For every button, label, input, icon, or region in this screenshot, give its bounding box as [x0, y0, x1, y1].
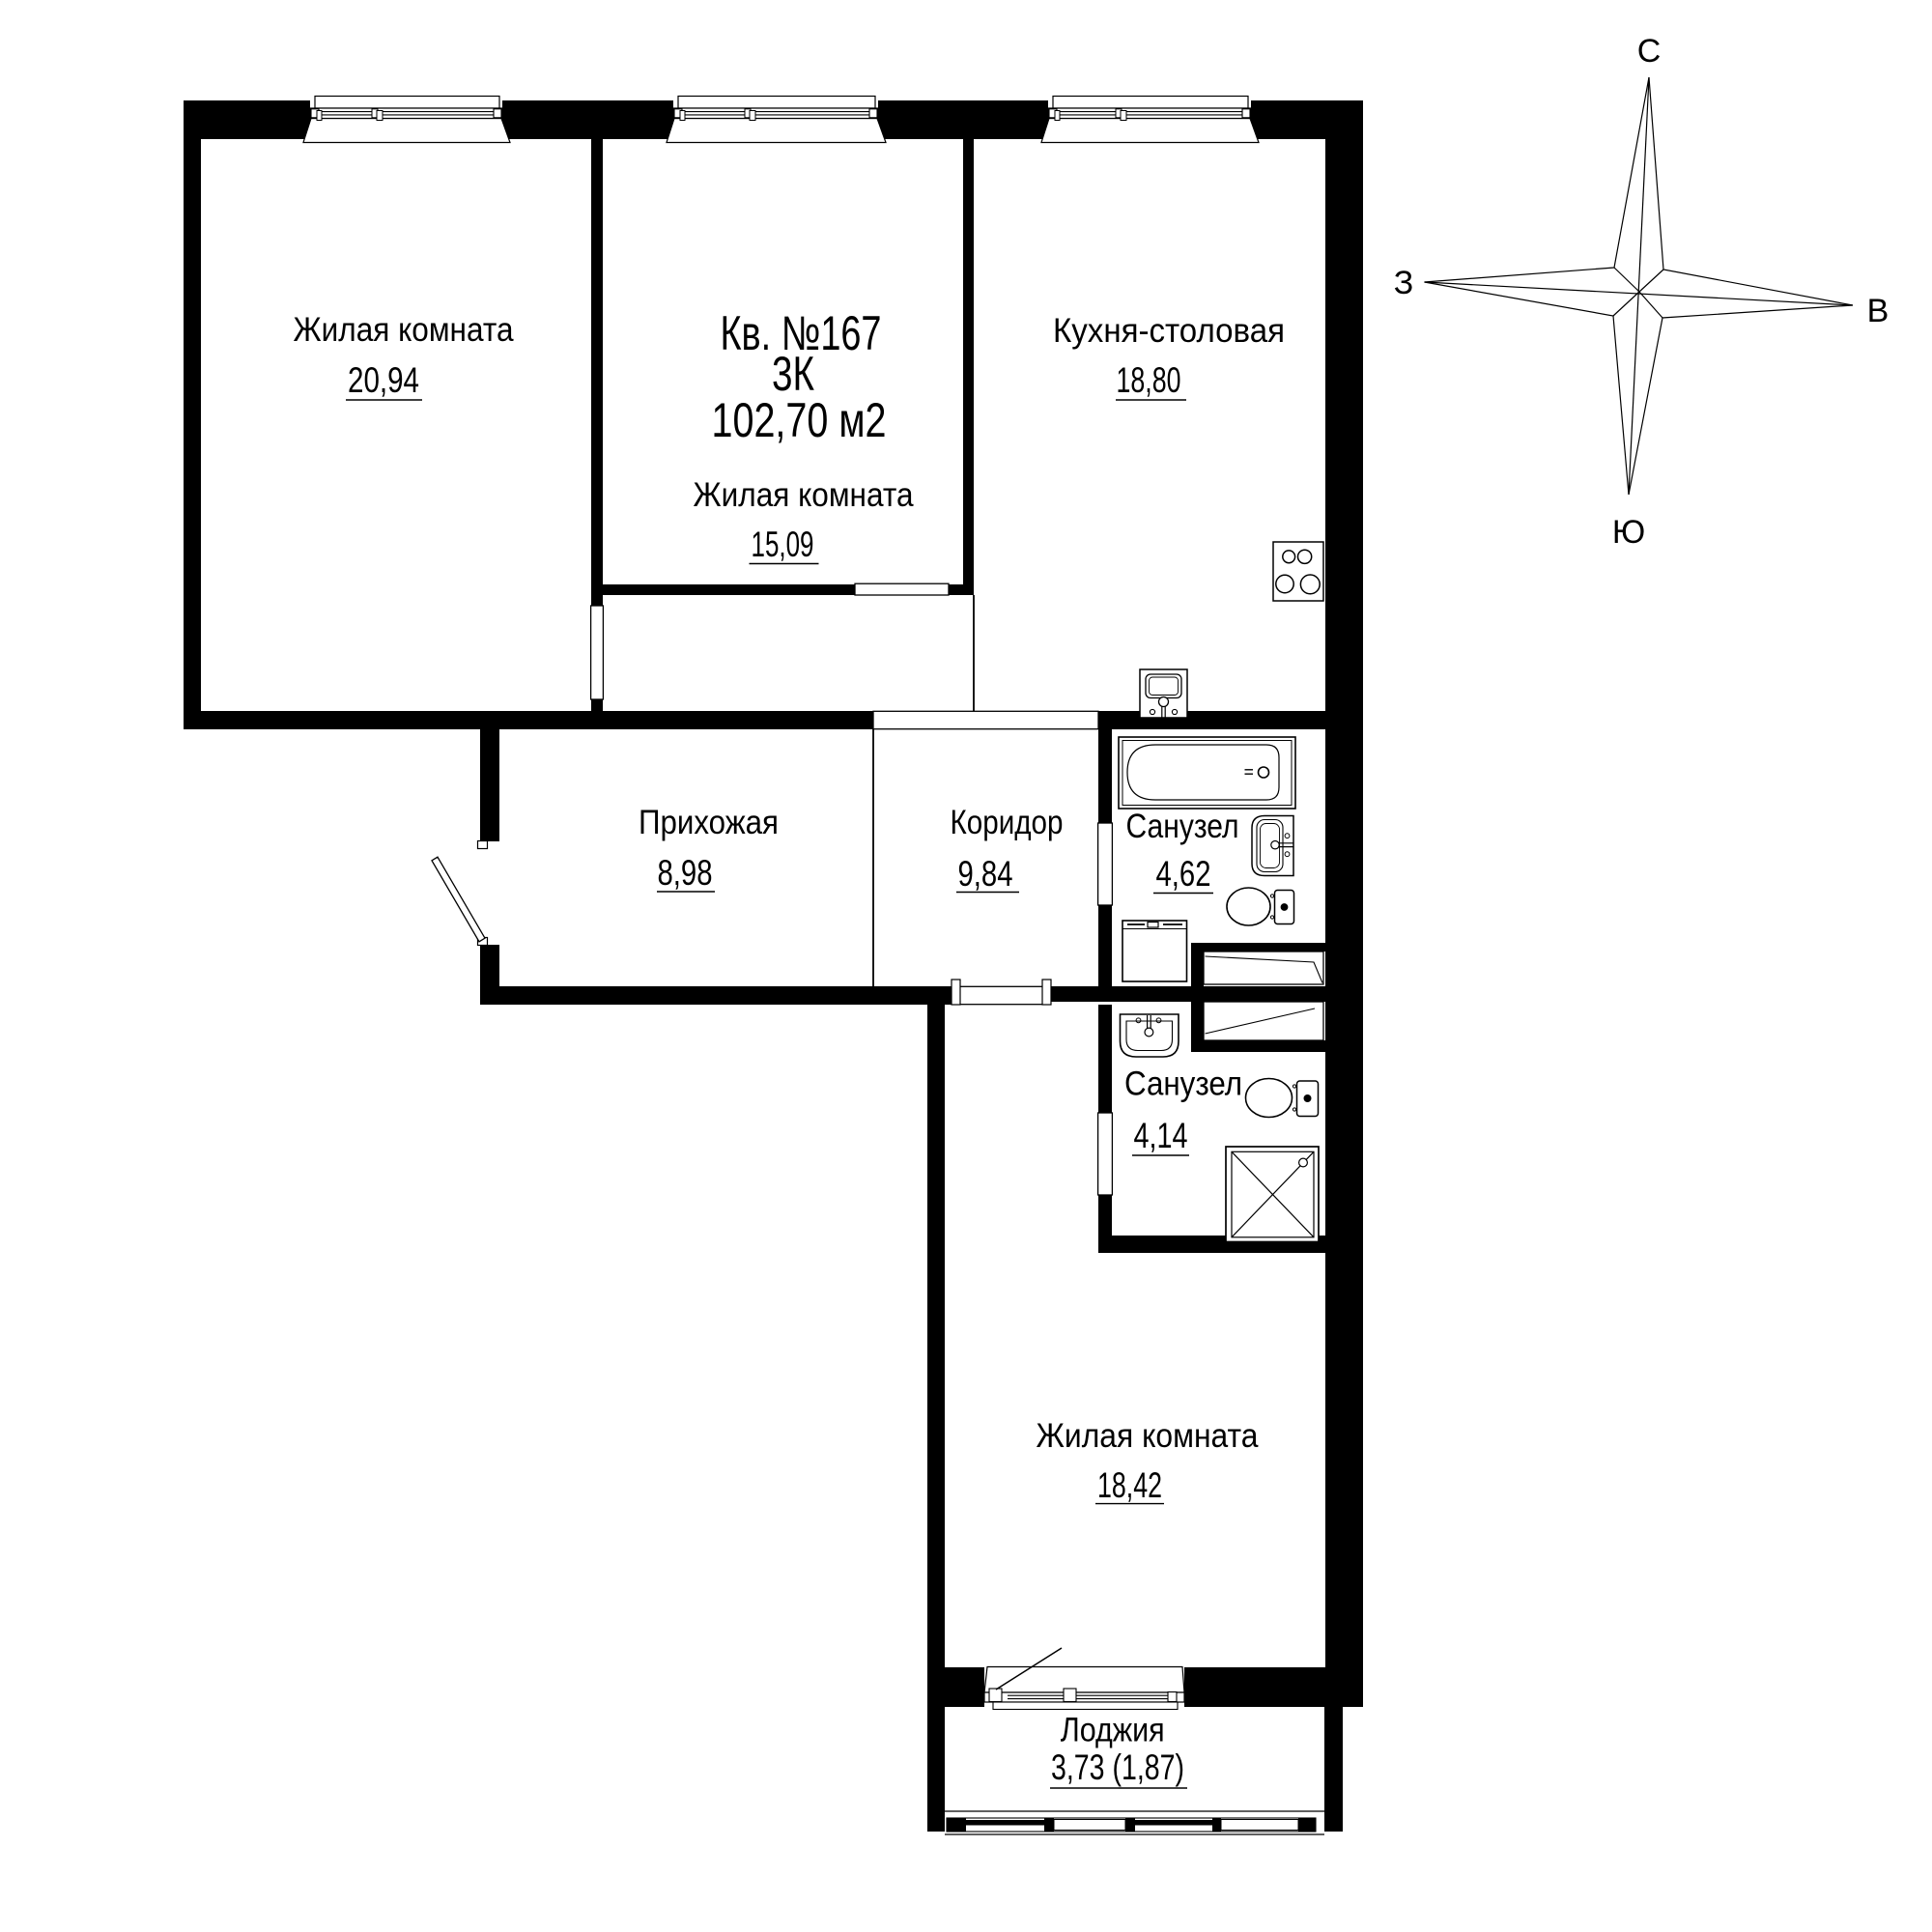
- svg-text:Прихожая: Прихожая: [639, 804, 779, 841]
- svg-text:Жилая комната: Жилая комната: [1037, 1417, 1259, 1455]
- svg-text:4,62: 4,62: [1156, 854, 1211, 894]
- svg-text:Лоджия: Лоджия: [1061, 1712, 1165, 1749]
- svg-text:8,98: 8,98: [658, 853, 713, 893]
- svg-text:С: С: [1637, 33, 1662, 70]
- svg-text:15,09: 15,09: [752, 525, 814, 564]
- svg-text:18,42: 18,42: [1097, 1465, 1162, 1505]
- svg-text:102,70 м2: 102,70 м2: [712, 393, 887, 447]
- svg-text:Жилая комната: Жилая комната: [294, 311, 514, 349]
- svg-text:Санузел: Санузел: [1124, 1065, 1242, 1103]
- svg-text:З: З: [1394, 265, 1414, 301]
- svg-text:Кухня-столовая: Кухня-столовая: [1053, 312, 1285, 350]
- svg-text:9,84: 9,84: [958, 854, 1013, 894]
- svg-text:3,73 (1,87): 3,73 (1,87): [1051, 1747, 1184, 1787]
- svg-text:В: В: [1867, 293, 1889, 329]
- svg-text:Ю: Ю: [1612, 514, 1645, 551]
- svg-text:18,80: 18,80: [1117, 360, 1181, 400]
- svg-text:Коридор: Коридор: [951, 804, 1064, 841]
- svg-text:Жилая комната: Жилая комната: [694, 476, 914, 514]
- svg-text:Санузел: Санузел: [1126, 808, 1239, 845]
- svg-text:20,94: 20,94: [348, 360, 419, 400]
- svg-text:4,14: 4,14: [1134, 1116, 1188, 1155]
